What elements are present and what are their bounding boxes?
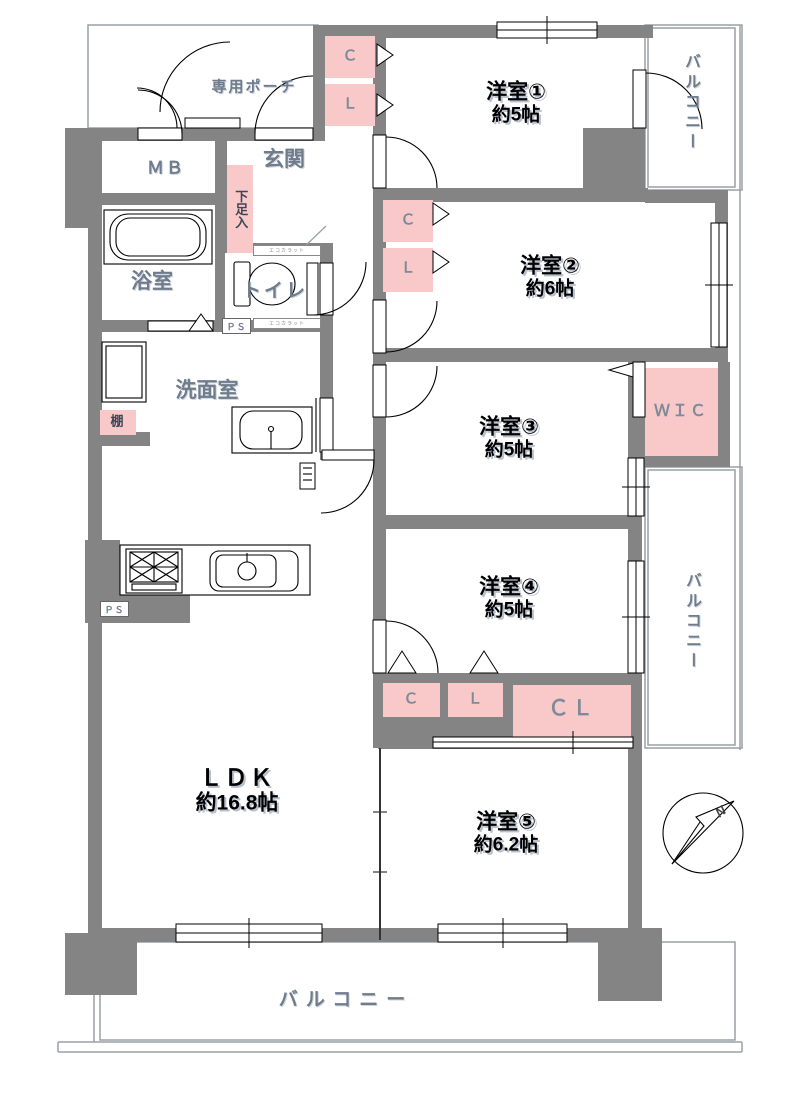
wic-label: ＷＩＣ (654, 403, 708, 421)
closet1-l-label: Ｌ (342, 97, 357, 114)
closet1-c-label: Ｃ (342, 49, 357, 66)
meter-box-label: ＭＢ (147, 158, 185, 177)
closet4-l-label: Ｌ (467, 692, 482, 709)
closet2-c-label: Ｃ (400, 213, 415, 230)
shoe-cabinet-label: 下足入 (233, 190, 248, 229)
ldk-size: 約16.8帖 (196, 791, 279, 815)
pipe-space-toilet: ＰＳ (222, 318, 251, 334)
room1-label: 洋室① 約5帖 (486, 81, 546, 126)
room3-size: 約5帖 (479, 439, 539, 460)
room2-label: 洋室② 約6帖 (520, 255, 580, 300)
room5-label: 洋室⑤ 約6.2帖 (474, 811, 538, 856)
bathroom-label: 浴室 (131, 270, 173, 294)
ldk-label: ＬＤＫ 約16.8帖 (196, 765, 279, 814)
balcony-top-label: バルコニー (681, 53, 699, 153)
room5-size: 約6.2帖 (474, 834, 538, 855)
pipe-space-kitchen: ＰＳ (100, 601, 129, 617)
ldk-name: ＬＤＫ (196, 765, 279, 791)
room2-size: 約6帖 (520, 278, 580, 299)
room3-name: 洋室③ (479, 416, 539, 440)
toilet-label: トイレ (242, 280, 308, 301)
room4-label: 洋室④ 約5帖 (479, 576, 539, 621)
room5-name: 洋室⑤ (474, 811, 538, 835)
shelf-label: 棚 (110, 415, 123, 430)
floorplan: 専用ポーチ ＭＢ 玄関 下足入 浴室 トイレ 洗面室 棚 ＰＳ ＰＳ エコカラッ… (0, 0, 803, 1111)
entrance-label: 玄関 (263, 148, 305, 172)
ecocarat-label-top: エコカラット (253, 245, 321, 256)
closet2-l-label: Ｌ (400, 261, 415, 278)
room1-name: 洋室① (486, 81, 546, 105)
room4-size: 約5帖 (479, 599, 539, 620)
closet-cl-label: ＣＬ (548, 697, 596, 721)
balcony-bottom-label: バルコニー (279, 989, 414, 1010)
room1-size: 約5帖 (486, 104, 546, 125)
washroom-label: 洗面室 (176, 379, 239, 403)
closet4-c-label: Ｃ (403, 692, 418, 709)
floorplan-drawing (0, 0, 803, 1111)
room3-label: 洋室③ 約5帖 (479, 416, 539, 461)
porch-label: 専用ポーチ (211, 80, 296, 97)
ecocarat-label-bottom: エコカラット (253, 318, 321, 329)
compass-icon (663, 793, 743, 873)
room2-name: 洋室② (520, 255, 580, 279)
room4-name: 洋室④ (479, 576, 539, 600)
balcony-right-label: バルコニー (682, 572, 700, 672)
